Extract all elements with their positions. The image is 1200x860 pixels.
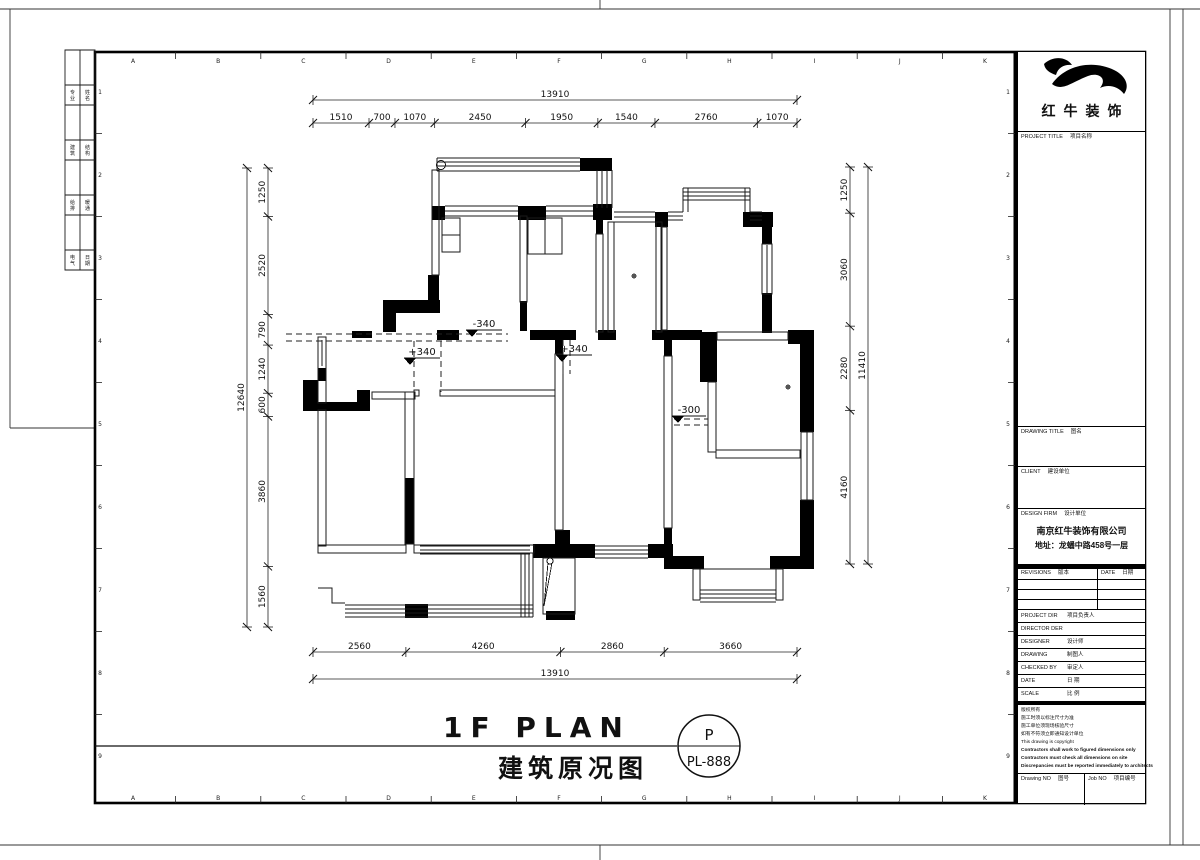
grid-number: 7 — [1006, 587, 1010, 594]
stamp-letter: P — [704, 726, 713, 744]
drawing-stamp: P PL-888 — [678, 715, 740, 777]
grid-letter: B — [216, 795, 220, 802]
door-leaf — [544, 563, 552, 606]
project-title-label: PROJECT TITLE — [1021, 134, 1063, 140]
staff-rows: PROJECT DIR项目负责人DIRECTOR DERDESIGNER设计师D… — [1018, 610, 1145, 701]
brand-name: 红牛装饰 — [1018, 101, 1145, 121]
drawing-no-label: Drawing NO — [1021, 776, 1051, 782]
dim-label: 4160 — [840, 475, 850, 498]
sign-strip-label: 日期 — [85, 255, 90, 267]
dim-label: 1240 — [258, 357, 268, 380]
logo-cell: 红牛装饰 — [1018, 54, 1145, 132]
dim-label: 1070 — [766, 113, 789, 123]
grid-letter: D — [386, 795, 391, 802]
dim-label: 3060 — [840, 258, 850, 281]
dim-label: 1950 — [550, 113, 573, 123]
grid-letter: B — [216, 58, 220, 65]
firm-name: 南京红牛装饰有限公司 — [1018, 524, 1145, 537]
copyright-line: 版权所有 — [1021, 707, 1145, 715]
sign-strip-label: 暖通 — [85, 199, 90, 212]
title-block: 红牛装饰 PROJECT TITLE项目名称 DRAWING TITLE图名 C… — [1015, 52, 1145, 803]
number-cells: Drawing NO图号 Job NO项目编号 — [1018, 774, 1145, 805]
sign-strip: 专业姓名建筑结构给排暖通电气日期 — [65, 50, 95, 270]
revisions-row — [1018, 590, 1145, 600]
design-firm-label: DESIGN FIRM — [1021, 511, 1057, 517]
dim-label: 1510 — [330, 113, 353, 123]
drawing-title-cell: DRAWING TITLE图名 — [1018, 427, 1145, 467]
grid-letter: H — [727, 795, 732, 802]
ceiling-dot — [632, 274, 637, 279]
dim-label: 1560 — [258, 585, 268, 608]
grid-letter: G — [642, 795, 647, 802]
revisions-header: REVISIONS版本 DATE日期 — [1018, 569, 1145, 580]
level-label: +340 — [408, 347, 435, 358]
caption: 1F PLAN 建筑原况图 — [95, 711, 677, 783]
grid-number: 5 — [1006, 421, 1010, 428]
grid-letter: G — [642, 58, 647, 65]
copyright-line: 如有不符须立即通知设计单位 — [1021, 731, 1145, 739]
sign-strip-label: 结构 — [85, 144, 90, 157]
grid-letter: K — [983, 58, 988, 65]
design-firm-cell: DESIGN FIRM设计单位 南京红牛装饰有限公司 地址：龙蟠中路458号一层 — [1018, 509, 1145, 565]
level-label: -340 — [473, 319, 496, 330]
sign-strip-label: 姓名 — [85, 89, 90, 102]
revisions-row — [1018, 580, 1145, 590]
job-no-label: Job NO — [1088, 776, 1107, 782]
grid-number: 3 — [98, 255, 102, 262]
dim-label: 700 — [373, 113, 390, 123]
dim-label: 3860 — [258, 480, 268, 503]
grid-letter: H — [727, 58, 732, 65]
copyright-line: Contractors shall work to figured dimens… — [1021, 747, 1145, 755]
grid-letter: J — [898, 58, 901, 65]
drawing-title-label: DRAWING TITLE — [1021, 429, 1064, 435]
grid-number: 8 — [1006, 670, 1010, 677]
dim-label: 1070 — [403, 113, 426, 123]
grid-number: 3 — [1006, 255, 1010, 262]
ceiling-dot — [786, 385, 791, 390]
drawing-sheet: 专业姓名建筑结构给排暖通电气日期 AABBCCDDEEFFGGHHIIJJKK1… — [0, 0, 1200, 860]
copyright-line: 施工单位须现场核验尺寸 — [1021, 723, 1145, 731]
grid-letter: C — [301, 58, 305, 65]
bull-logo-icon — [1022, 54, 1142, 100]
level-marker: +340 — [556, 344, 592, 362]
grid-number: 9 — [98, 753, 102, 760]
grid-number: 6 — [1006, 504, 1010, 511]
dim-label: 2280 — [840, 357, 850, 380]
dim-label: 11410 — [858, 351, 868, 380]
firm-address: 地址：龙蟠中路458号一层 — [1018, 540, 1145, 551]
caption-title-zh: 建筑原况图 — [498, 754, 648, 783]
copyright-line: Discrepancies must be reported immediate… — [1021, 763, 1145, 771]
dim-label: 1250 — [258, 181, 268, 204]
caption-title-en: 1F PLAN — [443, 711, 631, 744]
dim-label: 12640 — [237, 383, 247, 412]
revisions-row — [1018, 600, 1145, 610]
grid-number: 8 — [98, 670, 102, 677]
grid-number: 1 — [1006, 89, 1010, 96]
grid-letter: E — [472, 58, 476, 65]
dim-label: 13910 — [541, 669, 570, 679]
client-cell: CLIENT建设单位 — [1018, 467, 1145, 509]
titleblock-staff-row: DESIGNER设计师 — [1018, 636, 1145, 649]
grid-letter: I — [814, 58, 816, 65]
dim-label: 2520 — [258, 254, 268, 277]
grid-letter: F — [557, 58, 561, 65]
sign-strip-label: 给排 — [70, 199, 75, 212]
titleblock-staff-row: CHECKED BY审定人 — [1018, 662, 1145, 675]
copyright-line: This drawing is copyright — [1021, 739, 1145, 747]
dim-label: 1540 — [615, 113, 638, 123]
floor-plan: -340 +340 +340 -300 — [286, 158, 814, 620]
titleblock-staff-row: DRAWING制图人 — [1018, 649, 1145, 662]
titleblock-staff-row: PROJECT DIR项目负责人 — [1018, 610, 1145, 623]
dim-label: 3660 — [719, 642, 742, 652]
walls — [303, 158, 814, 620]
grid-letter: I — [814, 795, 816, 802]
copyright-cell: 版权所有施工时须以标注尺寸为准施工单位须现场核验尺寸如有不符须立即通知设计单位T… — [1018, 705, 1145, 774]
dim-label: 790 — [258, 321, 268, 338]
grid-number: 1 — [98, 89, 102, 96]
grid-letter: E — [472, 795, 476, 802]
sign-strip-label: 建筑 — [70, 144, 75, 157]
grid-letter: F — [557, 795, 561, 802]
grid-number: 4 — [98, 338, 102, 345]
sign-strip-label: 专业 — [70, 89, 75, 102]
grid-number: 9 — [1006, 753, 1010, 760]
grid-letter: D — [386, 58, 391, 65]
dashed-openings — [286, 334, 708, 425]
level-marker: +340 — [404, 347, 440, 365]
dim-label: 2860 — [601, 642, 624, 652]
grid-letter: A — [131, 795, 136, 802]
drawing-frame — [95, 52, 1145, 803]
dim-label: 4260 — [472, 642, 495, 652]
titleblock-staff-row: SCALE比 例 — [1018, 688, 1145, 701]
client-label: CLIENT — [1021, 469, 1041, 475]
level-marker: -300 — [672, 405, 706, 423]
level-label: -300 — [678, 405, 701, 416]
dim-label: 13910 — [541, 90, 570, 100]
grid-number: 6 — [98, 504, 102, 511]
grid-letter: K — [983, 795, 988, 802]
grid-letter: J — [898, 795, 901, 802]
copyright-line: Contractors must check all dimensions on… — [1021, 755, 1145, 763]
dim-label: 1250 — [840, 178, 850, 201]
grid-number: 2 — [98, 172, 102, 179]
grid-number: 4 — [1006, 338, 1010, 345]
copyright-line: 施工时须以标注尺寸为准 — [1021, 715, 1145, 723]
grid-number: 5 — [98, 421, 102, 428]
dim-label: 2560 — [348, 642, 371, 652]
dim-label: 2760 — [695, 113, 718, 123]
sign-strip-label: 电气 — [70, 254, 75, 267]
grid-number: 2 — [1006, 172, 1010, 179]
grid-letter: A — [131, 58, 136, 65]
grid-letter: C — [301, 795, 305, 802]
dim-label: 2450 — [469, 113, 492, 123]
titleblock-staff-row: DATE日 期 — [1018, 675, 1145, 688]
level-label: +340 — [560, 344, 587, 355]
project-title-cell: PROJECT TITLE项目名称 — [1018, 132, 1145, 427]
stamp-number: PL-888 — [687, 755, 731, 770]
grid-number: 7 — [98, 587, 102, 594]
titleblock-staff-row: DIRECTOR DER — [1018, 623, 1145, 636]
dim-label: 600 — [258, 396, 268, 413]
